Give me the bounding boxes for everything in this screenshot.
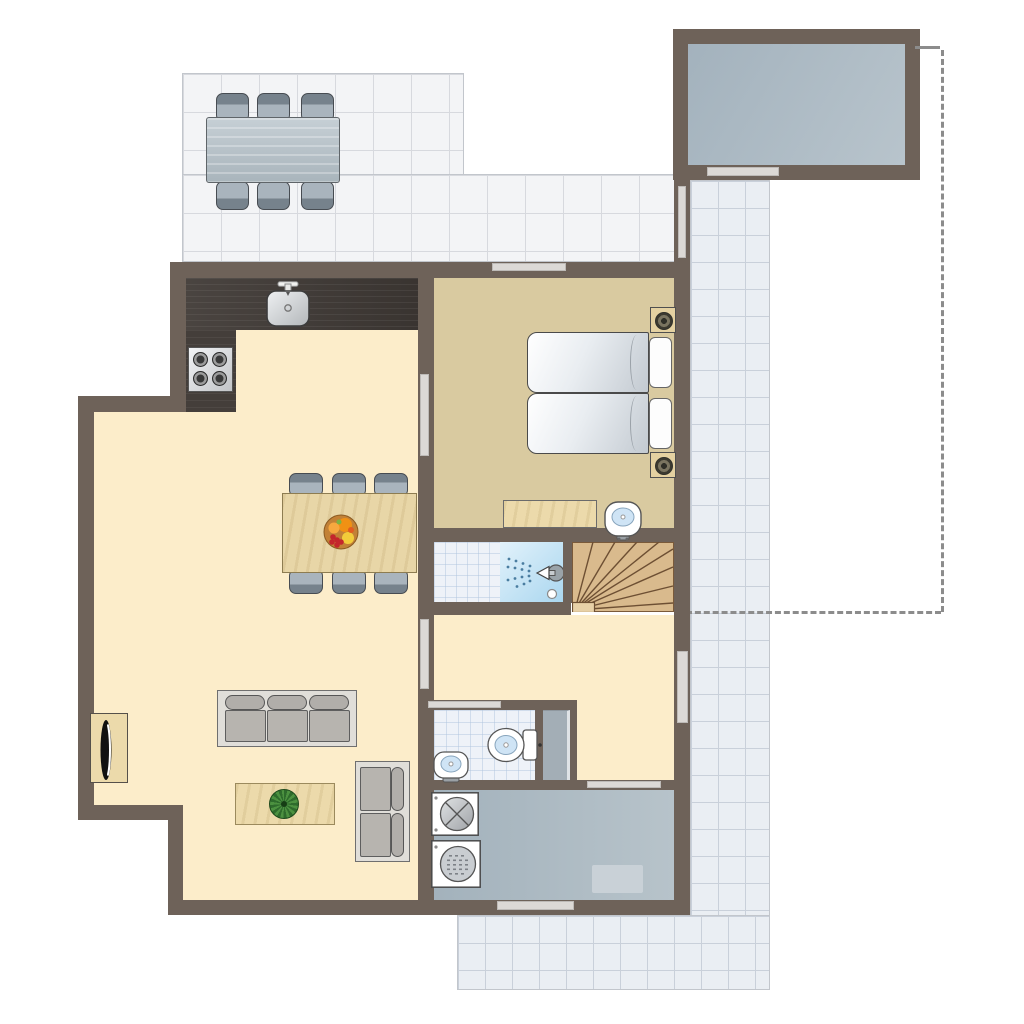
living-hall-door xyxy=(420,619,429,689)
wall-shower-stairs xyxy=(563,542,572,603)
sofa-back-cushion xyxy=(391,813,404,857)
toilet-icon xyxy=(486,725,542,765)
fruit-bowl xyxy=(323,514,359,550)
wall-left-upper xyxy=(170,262,186,412)
outdoor-chair xyxy=(216,181,249,210)
sofa-back-cushion xyxy=(309,695,349,710)
wall-shower-bottom xyxy=(418,602,571,615)
toilet-washbasin xyxy=(433,751,469,784)
plant-icon xyxy=(269,789,299,819)
bedroom-washbasin xyxy=(603,501,643,542)
lamp-icon xyxy=(655,457,673,475)
lamp-icon xyxy=(655,312,673,330)
stove-burner-icon xyxy=(193,371,208,386)
washing-machine xyxy=(431,792,479,836)
garden-path-right xyxy=(690,180,770,990)
wall-toilet-right-outer xyxy=(570,700,577,782)
outdoor-chair xyxy=(257,181,290,210)
bed-single xyxy=(527,332,649,393)
sofa-3-seat xyxy=(217,690,357,747)
doormat xyxy=(592,865,643,893)
sofa-seat-cushion xyxy=(225,710,266,742)
sofa-seat-cushion xyxy=(309,710,350,742)
washing-machine-icon xyxy=(431,792,479,836)
boundary-line-vertical xyxy=(941,50,944,612)
nightstand xyxy=(650,307,676,333)
staircase xyxy=(572,542,674,612)
terrace-tiles-lower xyxy=(182,174,675,262)
hall-floor-lower xyxy=(577,700,674,780)
dryer-icon xyxy=(431,840,481,888)
sofa-back-cushion xyxy=(225,695,265,710)
winder-stairs-icon xyxy=(572,542,674,612)
fruit-bowl-icon xyxy=(323,514,359,550)
shower-drain-icon xyxy=(548,590,557,599)
utility-window xyxy=(497,901,574,910)
stove-burner-icon xyxy=(212,371,227,386)
kitchen-stove xyxy=(188,347,233,392)
utility-door xyxy=(587,781,661,788)
shower-room-floor xyxy=(434,542,500,602)
wall-left-bottom xyxy=(168,805,183,915)
pillow xyxy=(649,337,672,388)
washbasin-icon xyxy=(603,501,643,542)
shower-stall xyxy=(500,542,563,604)
wall-step-top xyxy=(78,396,186,412)
washbasin-icon xyxy=(433,751,469,784)
sofa-back-cushion xyxy=(267,695,307,710)
toilet-door xyxy=(428,701,501,708)
stove-burner-icon xyxy=(193,352,208,367)
outdoor-chair xyxy=(301,181,334,210)
toilet xyxy=(486,725,542,765)
sofa-seat-cushion xyxy=(360,813,391,857)
pillow xyxy=(649,398,672,449)
sofa-seat-cushion xyxy=(360,767,391,811)
front-entrance-door xyxy=(677,651,688,723)
hall-floor xyxy=(434,615,674,700)
boundary-line-horizontal xyxy=(686,611,941,614)
shed-window xyxy=(707,167,779,176)
terrace-tiles-bottom xyxy=(457,915,770,990)
wall-right xyxy=(674,262,690,915)
sofa-2-seat xyxy=(355,761,410,862)
dryer xyxy=(431,840,481,888)
bed-single xyxy=(527,393,649,454)
shed-floor xyxy=(688,44,905,165)
bedroom-door xyxy=(420,374,429,456)
bedroom-window xyxy=(492,263,566,271)
garden-gate xyxy=(678,186,686,258)
toilet-door-panel xyxy=(543,710,570,782)
shower-spray-icon xyxy=(500,542,563,604)
tv-icon xyxy=(100,719,114,781)
stove-burner-icon xyxy=(212,352,227,367)
outdoor-dining-table xyxy=(206,117,340,183)
sofa-seat-cushion xyxy=(267,710,308,742)
boundary-line-stub xyxy=(915,46,940,49)
kitchen-sink xyxy=(266,281,310,328)
bedroom-dresser xyxy=(503,500,597,528)
floor-plan-canvas xyxy=(0,0,1024,1024)
nightstand xyxy=(650,452,676,478)
sofa-back-cushion xyxy=(391,767,404,811)
